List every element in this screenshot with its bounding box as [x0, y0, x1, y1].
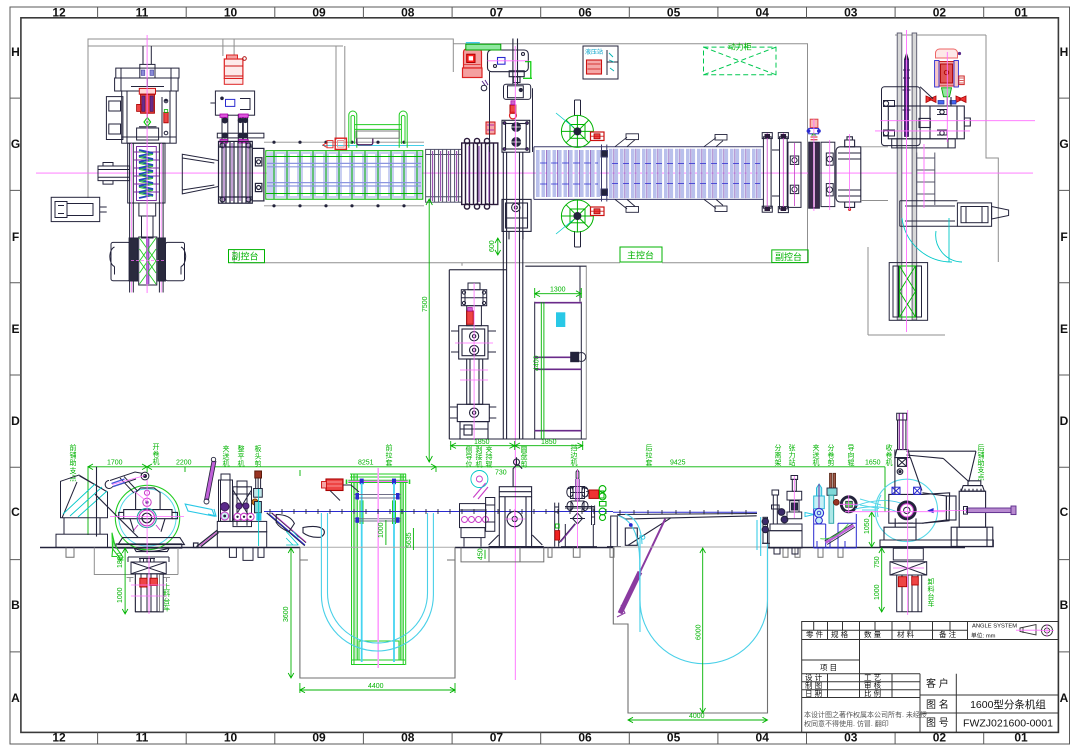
svg-text:张力站: 张力站 — [789, 443, 796, 467]
svg-text:前拉套: 前拉套 — [386, 443, 393, 467]
svg-text:后拉套: 后拉套 — [646, 443, 653, 467]
svg-text:08: 08 — [401, 6, 415, 20]
svg-text:分离架: 分离架 — [775, 443, 782, 467]
svg-text:01: 01 — [1014, 6, 1028, 20]
svg-text:图 名: 图 名 — [926, 698, 949, 711]
svg-text:动力柜: 动力柜 — [728, 42, 752, 52]
svg-text:A: A — [1060, 691, 1069, 705]
svg-text:04: 04 — [756, 6, 770, 20]
svg-text:1000: 1000 — [874, 584, 881, 600]
svg-text:F: F — [1060, 230, 1067, 244]
svg-text:零 件: 零 件 — [806, 629, 824, 639]
svg-text:6000: 6000 — [696, 624, 703, 640]
svg-text:项 目: 项 目 — [820, 663, 837, 672]
svg-text:液压站: 液压站 — [585, 48, 603, 56]
svg-text:后铺助支点: 后铺助支点 — [978, 443, 985, 482]
svg-text:11: 11 — [136, 731, 149, 745]
svg-text:FWZJ021600-0001: FWZJ021600-0001 — [963, 718, 1053, 730]
svg-text:06: 06 — [578, 6, 592, 20]
svg-text:1050: 1050 — [864, 518, 871, 534]
svg-text:1650: 1650 — [865, 460, 881, 467]
svg-text:C: C — [11, 505, 20, 519]
svg-text:备 注: 备 注 — [939, 629, 957, 639]
svg-text:副控台: 副控台 — [775, 251, 802, 262]
svg-text:日 期: 日 期 — [805, 689, 822, 698]
svg-text:夹送机: 夹送机 — [813, 443, 820, 467]
svg-text:03: 03 — [844, 6, 858, 20]
svg-text:07: 07 — [490, 731, 504, 745]
svg-text:分卷剪: 分卷剪 — [828, 443, 835, 467]
svg-text:04: 04 — [756, 731, 770, 745]
svg-text:2200: 2200 — [176, 460, 192, 467]
svg-text:06: 06 — [578, 731, 592, 745]
svg-text:单位: mm: 单位: mm — [971, 632, 996, 640]
svg-text:1850: 1850 — [474, 439, 490, 446]
svg-text:开卷机: 开卷机 — [153, 443, 160, 466]
svg-text:副控台: 副控台 — [232, 251, 259, 262]
svg-text:12: 12 — [52, 731, 66, 745]
svg-text:4400: 4400 — [368, 683, 384, 690]
svg-text:02: 02 — [933, 6, 947, 20]
svg-text:数 量: 数 量 — [864, 629, 882, 639]
svg-text:10: 10 — [224, 6, 238, 20]
svg-text:材 料: 材 料 — [897, 629, 915, 639]
svg-text:11: 11 — [136, 6, 149, 20]
svg-text:挡边机: 挡边机 — [571, 443, 578, 467]
svg-text:450: 450 — [478, 548, 485, 560]
svg-text:07: 07 — [490, 6, 504, 20]
svg-text:09: 09 — [312, 731, 326, 745]
svg-text:08: 08 — [401, 731, 415, 745]
svg-text:4400: 4400 — [534, 355, 541, 371]
svg-text:侧导位: 侧导位 — [466, 445, 473, 468]
svg-text:图 号: 图 号 — [926, 717, 949, 729]
svg-text:导向辊: 导向辊 — [848, 444, 855, 467]
svg-text:H: H — [1060, 45, 1069, 59]
svg-text:05: 05 — [667, 731, 681, 745]
svg-text:8251: 8251 — [358, 460, 374, 467]
svg-text:夹送机: 夹送机 — [223, 444, 230, 468]
svg-text:夹持辊: 夹持辊 — [486, 445, 493, 468]
svg-text:9425: 9425 — [670, 460, 686, 467]
svg-text:1700: 1700 — [107, 460, 123, 467]
svg-text:E: E — [11, 322, 19, 336]
svg-text:上料台车: 上料台车 — [163, 582, 170, 613]
svg-text:F: F — [12, 230, 19, 244]
svg-text:730: 730 — [495, 470, 507, 477]
svg-text:收卷机: 收卷机 — [886, 443, 893, 467]
svg-text:整平机: 整平机 — [238, 444, 245, 468]
svg-text:C: C — [1060, 505, 1069, 519]
svg-text:7500: 7500 — [422, 296, 429, 312]
svg-text:板头剪: 板头剪 — [255, 444, 262, 468]
svg-text:客 户: 客 户 — [926, 677, 949, 690]
svg-text:750: 750 — [874, 556, 881, 568]
svg-text:B: B — [11, 598, 20, 612]
svg-text:09: 09 — [312, 6, 326, 20]
svg-text:3600: 3600 — [283, 606, 290, 622]
svg-text:规 格: 规 格 — [831, 629, 849, 639]
svg-text:卸料台车: 卸料台车 — [928, 577, 935, 608]
svg-text:D: D — [1060, 414, 1069, 428]
svg-text:权同意不得使用. 仿冒. 翻印: 权同意不得使用. 仿冒. 翻印 — [804, 719, 889, 728]
svg-text:比 例: 比 例 — [864, 688, 881, 698]
svg-text:5635: 5635 — [406, 532, 413, 548]
svg-text:H: H — [11, 45, 20, 59]
svg-text:1800: 1800 — [117, 552, 124, 568]
svg-text:B: B — [1060, 598, 1069, 612]
svg-text:圆盘剪: 圆盘剪 — [521, 446, 528, 468]
svg-text:1300: 1300 — [550, 287, 566, 294]
svg-text:A: A — [11, 691, 20, 705]
svg-text:G: G — [1059, 137, 1068, 151]
svg-text:剥接机: 剥接机 — [476, 445, 483, 468]
svg-text:4000: 4000 — [689, 713, 705, 720]
svg-text:E: E — [1060, 322, 1068, 336]
svg-text:本设计图之著作权属本公司所有. 未经授: 本设计图之著作权属本公司所有. 未经授 — [804, 710, 927, 719]
svg-text:D: D — [11, 414, 20, 428]
svg-text:ANGLE SYSTEM: ANGLE SYSTEM — [972, 624, 1017, 630]
svg-text:12: 12 — [52, 6, 66, 20]
svg-text:1600型分条机组: 1600型分条机组 — [970, 698, 1046, 711]
svg-text:10: 10 — [224, 731, 238, 745]
svg-text:G: G — [11, 137, 20, 151]
svg-text:1000: 1000 — [378, 522, 385, 538]
svg-text:600: 600 — [489, 240, 496, 252]
svg-text:1850: 1850 — [541, 439, 557, 446]
svg-text:1000: 1000 — [117, 587, 124, 603]
svg-text:主控台: 主控台 — [627, 250, 654, 261]
svg-text:05: 05 — [667, 6, 681, 20]
